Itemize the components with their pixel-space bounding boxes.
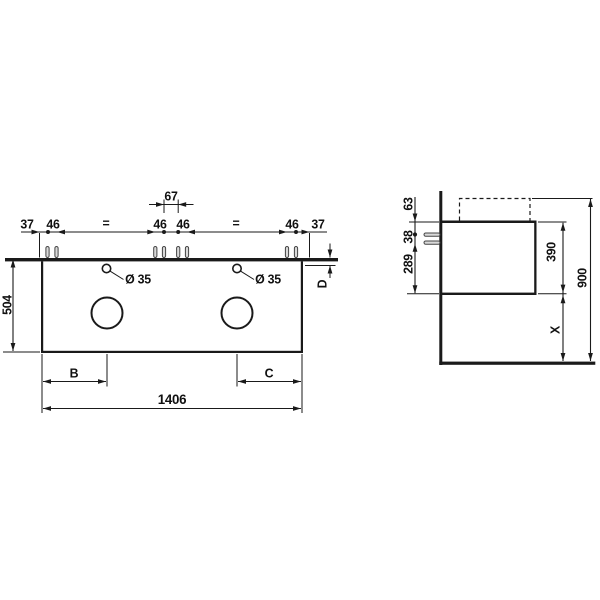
dim-label-C: C (265, 365, 274, 380)
faucet-label-right: Ø 35 (255, 272, 281, 287)
dim-label-38: 38 (400, 230, 415, 243)
front-view (3, 200, 338, 414)
dim-label-67: 67 (164, 189, 177, 204)
wall-screw-icon (424, 241, 440, 244)
faucet-hole-left (102, 264, 110, 272)
drawing-linework (0, 0, 600, 600)
wall-screw-icon (424, 233, 440, 236)
side-view (407, 191, 595, 365)
drain-holes (92, 298, 253, 329)
mounting-pin-icon (162, 247, 165, 258)
faucet-holes (102, 264, 241, 272)
dim-label-46-pair4: 46 (285, 217, 298, 232)
dim-390-X (561, 223, 566, 361)
faucet-label-left: Ø 35 (125, 272, 151, 287)
dim-label-289: 289 (400, 254, 415, 274)
side-extension-lines (407, 199, 593, 294)
dim-label-900: 900 (574, 268, 589, 288)
dim-label-D: D (314, 279, 329, 288)
dim-label-37-right: 37 (311, 217, 324, 232)
countertop-line (5, 258, 338, 261)
dim-label-46-pair1: 46 (46, 217, 59, 232)
mounting-pin-icon (55, 247, 58, 258)
mounting-pin-icon (46, 247, 49, 258)
dim-label-1406: 1406 (158, 391, 186, 407)
dim-label-eq-left: = (103, 216, 110, 231)
dim-label-46-pair2: 46 (153, 217, 166, 232)
wall-screw-icons (424, 233, 440, 244)
mounting-pin-icons (46, 247, 298, 258)
mounting-pin-icon (294, 247, 297, 258)
mounting-pin-icon (177, 247, 180, 258)
dim-label-390: 390 (544, 242, 559, 262)
mounting-pin-icon (154, 247, 157, 258)
drain-hole-right (222, 298, 253, 329)
technical-drawing: 37 46 = 46 67 46 = 46 37 504 Ø 35 Ø 35 D… (0, 0, 600, 600)
dim-label-63: 63 (400, 197, 415, 210)
dim-63-38-289 (413, 197, 418, 293)
mounting-pin-icon (185, 247, 188, 258)
wall-line (439, 191, 442, 365)
floor-line (439, 362, 595, 365)
dim-label-37-left: 37 (20, 217, 33, 232)
washbasin-dashed-outline (460, 199, 531, 221)
cabinet-side-outline (442, 221, 537, 296)
dim-label-504: 504 (0, 295, 15, 315)
dim-label-X: X (547, 326, 562, 334)
faucet-hole-right (233, 264, 241, 272)
mounting-pin-icon (285, 247, 288, 258)
dim-label-B: B (70, 365, 79, 380)
drain-hole-left (92, 298, 123, 329)
dim-label-eq-right: = (233, 216, 240, 231)
dim-label-46-pair3: 46 (176, 217, 189, 232)
dim-top-chain (21, 230, 327, 258)
